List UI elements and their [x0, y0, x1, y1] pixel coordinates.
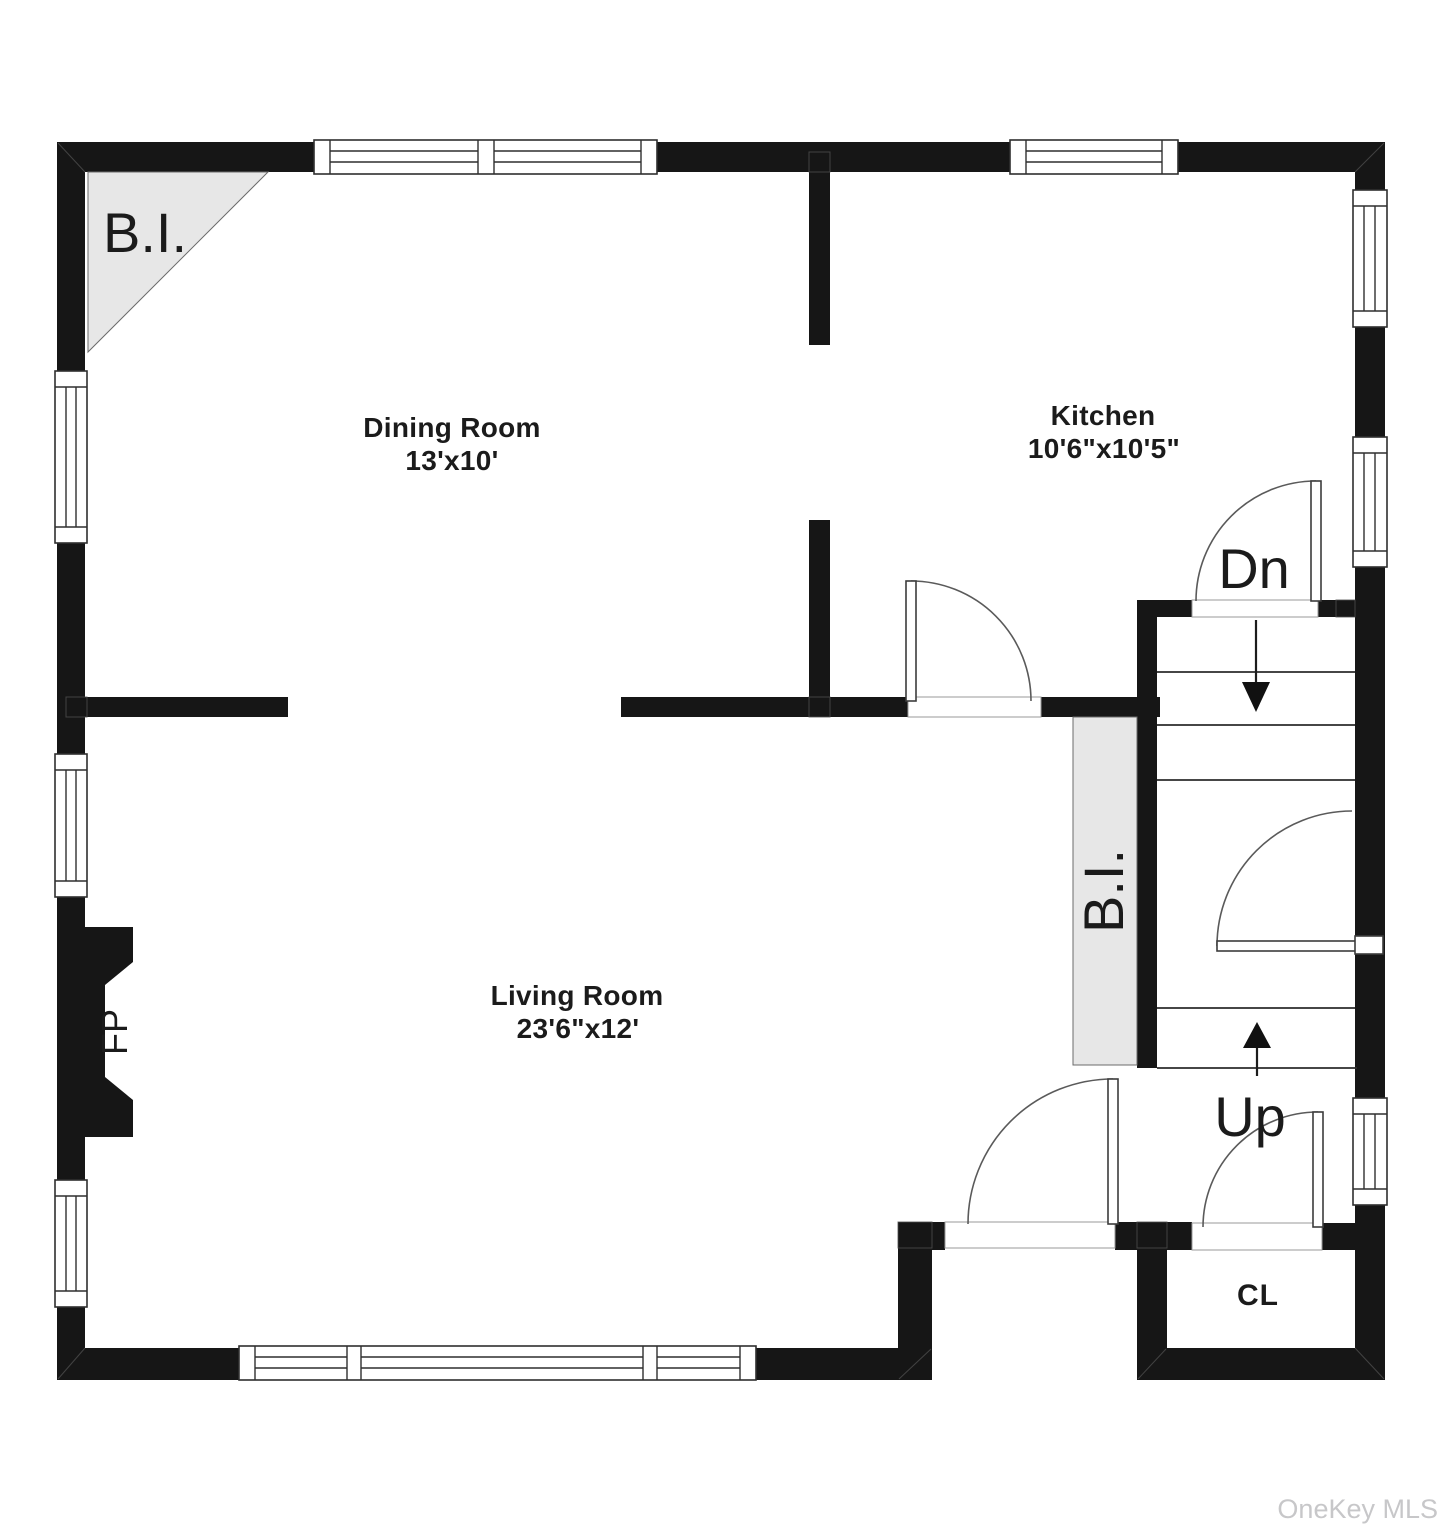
- floor-plan: B.I. Dining Room 13'x10' Kitchen 10'6"x1…: [0, 0, 1447, 1536]
- kitchen-label: Kitchen: [1051, 400, 1156, 431]
- window-kitchen-right-lower: [1353, 437, 1387, 567]
- door-panel-stair-hall: [1217, 941, 1357, 951]
- wall-south-b: [1115, 1222, 1192, 1250]
- builtin-corner-label: B.I.: [103, 201, 187, 264]
- door-jamb-stair-hall: [1355, 936, 1383, 954]
- window-hall-right: [1353, 1098, 1387, 1205]
- corner-miters: [58, 143, 1384, 1379]
- wall-divider-lower: [809, 520, 830, 717]
- wall-bottom-closet: [1137, 1348, 1385, 1380]
- living-room-dims: 23'6"x12': [517, 1013, 640, 1044]
- floor-plan-drawing: B.I. Dining Room 13'x10' Kitchen 10'6"x1…: [0, 0, 1447, 1536]
- wall-stair-top-left: [1137, 600, 1192, 617]
- window-living-left-upper: [55, 754, 87, 897]
- living-room-label: Living Room: [491, 980, 664, 1011]
- opening-stairs-down: [1192, 600, 1318, 617]
- window-dining-top: [314, 140, 657, 174]
- door-arc-stair-hall: [1217, 811, 1352, 946]
- opening-kitchen: [908, 697, 1041, 717]
- opening-living: [945, 1222, 1115, 1248]
- wall-stairwell-left: [1137, 617, 1157, 1068]
- stairs-up-arrow-head: [1243, 1022, 1271, 1048]
- wall-south-a: [898, 1222, 945, 1250]
- pier-left: [898, 1248, 932, 1380]
- stairs-down-arrow-head: [1242, 682, 1270, 712]
- stairs-down-label: Dn: [1218, 537, 1290, 600]
- wall-divider-upper: [809, 172, 830, 345]
- pier-right: [1137, 1248, 1167, 1380]
- door-panel-kitchen: [906, 581, 916, 701]
- wall-top: [57, 142, 1385, 172]
- builtin-hall-label: B.I.: [1072, 849, 1135, 933]
- dining-room-dims: 13'x10': [405, 445, 498, 476]
- door-arc-kitchen: [911, 581, 1031, 701]
- closet-label: CL: [1237, 1279, 1279, 1312]
- windows: [55, 140, 1387, 1380]
- opening-stairs-up: [1192, 1223, 1322, 1250]
- window-dining-left: [55, 371, 87, 543]
- wall-mid-center: [621, 697, 908, 717]
- staircase: [1157, 620, 1357, 1076]
- door-panel-stairs-up: [1313, 1112, 1323, 1227]
- window-kitchen-right-upper: [1353, 190, 1387, 327]
- labels: B.I. Dining Room 13'x10' Kitchen 10'6"x1…: [94, 201, 1438, 1524]
- dining-room-label: Dining Room: [363, 412, 541, 443]
- window-living-left-lower: [55, 1180, 87, 1307]
- stairs-up-label: Up: [1214, 1085, 1286, 1148]
- wall-south-jamb: [1322, 1223, 1357, 1250]
- watermark: OneKey MLS: [1277, 1494, 1438, 1524]
- exterior-walls: [57, 142, 1385, 1380]
- wall-mid-west: [83, 697, 288, 717]
- window-kitchen-top: [1010, 140, 1178, 174]
- window-living-bottom: [239, 1346, 756, 1380]
- door-panel-stairs-down: [1311, 481, 1321, 601]
- fireplace-label: FP: [94, 1009, 135, 1055]
- kitchen-dims: 10'6"x10'5": [1028, 433, 1180, 464]
- door-arc-living: [968, 1079, 1113, 1224]
- door-panel-living: [1108, 1079, 1118, 1224]
- interior-walls: [83, 172, 1357, 1380]
